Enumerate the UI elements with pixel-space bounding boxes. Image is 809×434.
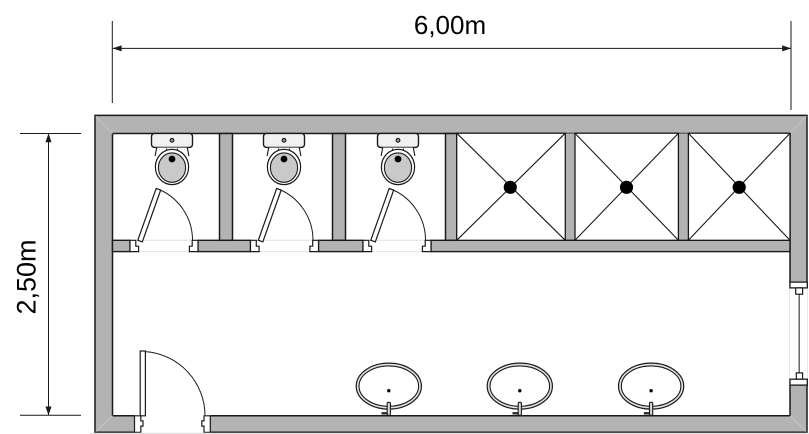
svg-text:2,50m: 2,50m — [12, 239, 42, 314]
svg-text:6,00m: 6,00m — [414, 10, 486, 40]
